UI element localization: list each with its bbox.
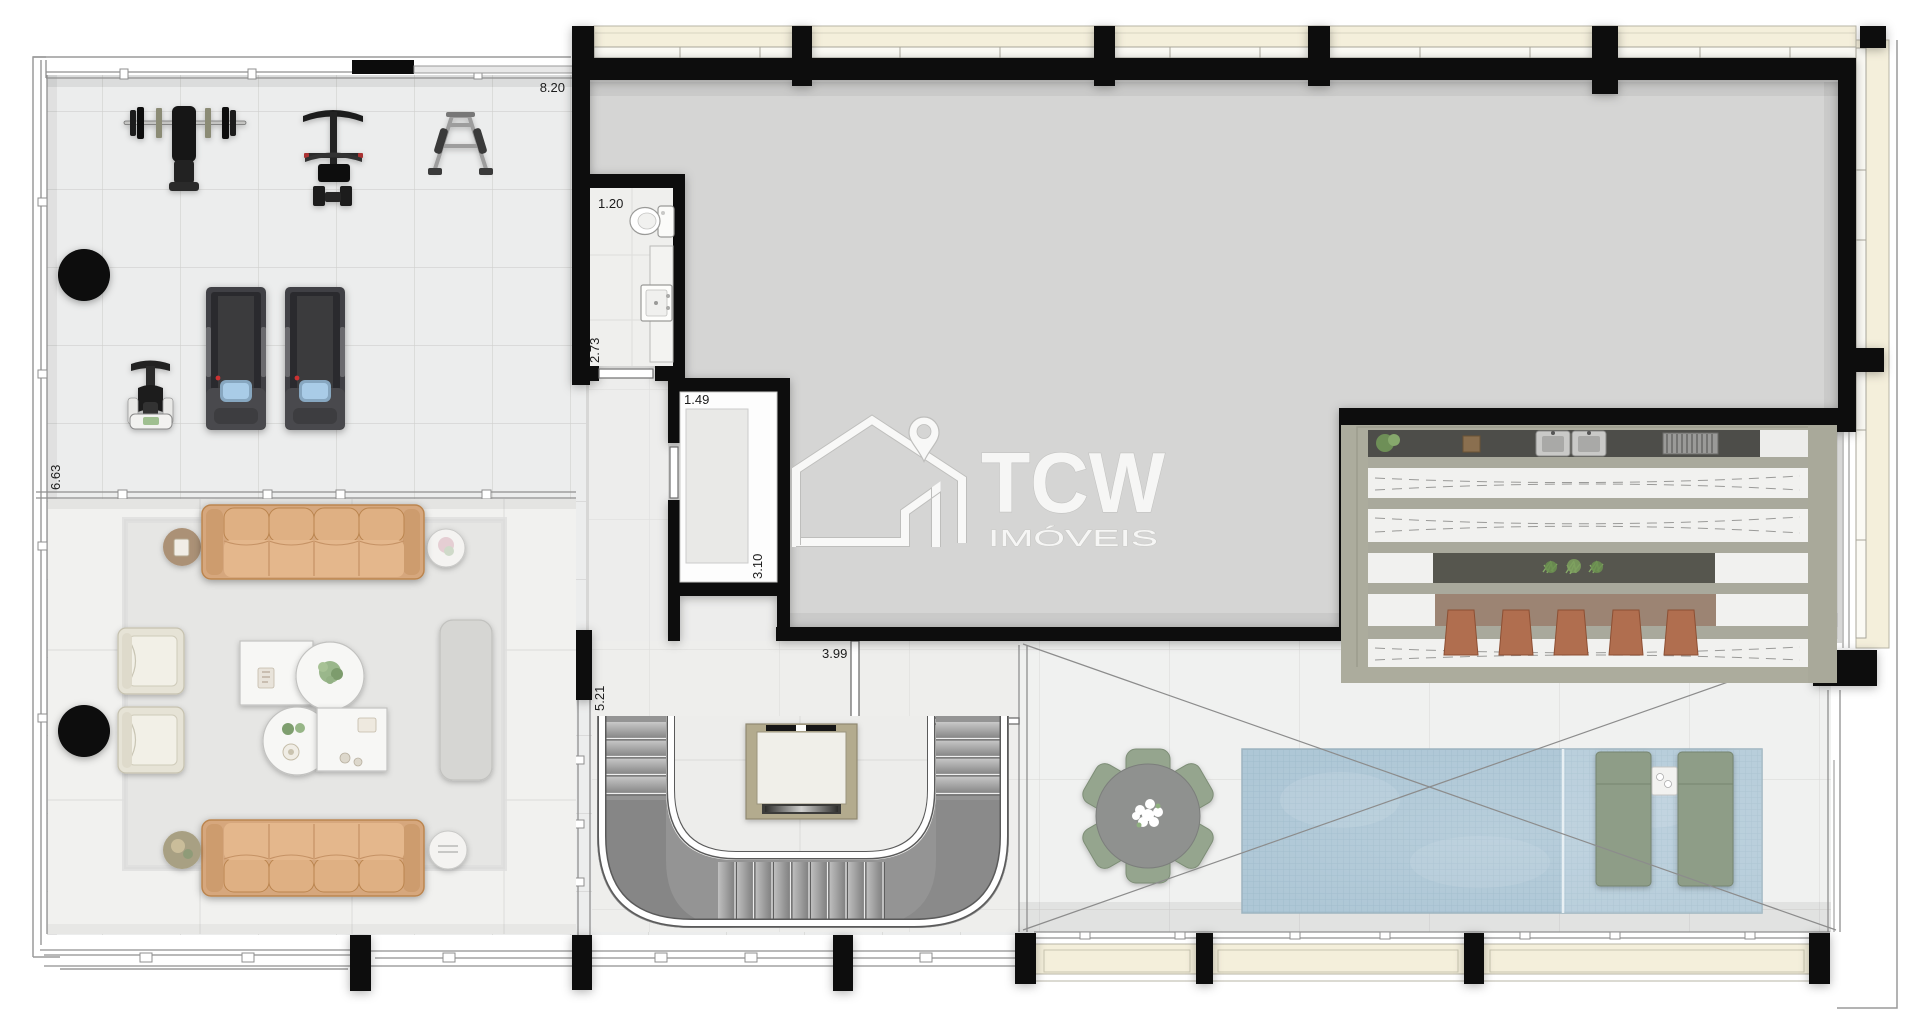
svg-text:8.20: 8.20 [540, 80, 565, 95]
svg-text:IMÓVEIS: IMÓVEIS [988, 525, 1158, 551]
svg-text:1.20: 1.20 [598, 196, 623, 211]
svg-text:3.10: 3.10 [750, 554, 765, 579]
svg-text:3.99: 3.99 [822, 646, 847, 661]
svg-text:5.21: 5.21 [592, 686, 607, 711]
svg-text:2.73: 2.73 [587, 338, 602, 363]
svg-text:TCW: TCW [981, 436, 1166, 531]
svg-text:1.49: 1.49 [684, 392, 709, 407]
svg-text:6.63: 6.63 [48, 465, 63, 490]
